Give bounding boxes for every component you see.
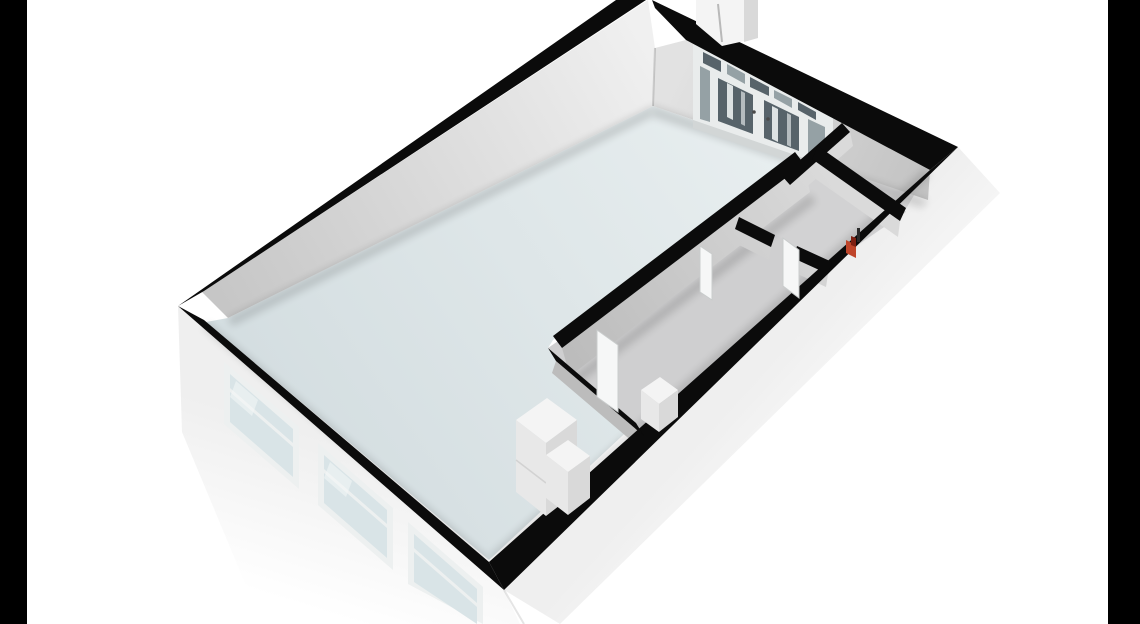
door-handle — [752, 110, 756, 114]
door-handle — [766, 117, 770, 121]
glass-reflection — [787, 113, 791, 147]
corridor-door-leaf — [700, 246, 712, 300]
dark-accent — [857, 228, 860, 242]
letterbox-right — [1108, 0, 1140, 624]
glass-reflection — [727, 83, 733, 120]
floorplan-3d-render — [0, 0, 1140, 624]
letterbox-left — [0, 0, 27, 624]
kitchen-door-leaf — [597, 330, 618, 412]
floorplan-canvas — [0, 0, 1140, 624]
sidelight-left-glass — [700, 66, 710, 122]
vestibule-side — [744, 0, 758, 42]
glass-reflection — [741, 91, 745, 126]
glass-reflection — [772, 106, 778, 142]
